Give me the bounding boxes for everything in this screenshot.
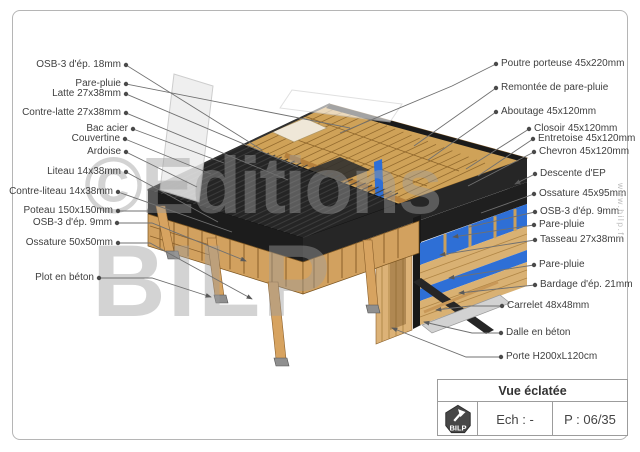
- callout-label-right-6: Descente d'EP: [540, 168, 606, 180]
- bilp-logo-cell: BILP: [438, 402, 478, 436]
- callout-label-right-14: Dalle en béton: [506, 327, 571, 339]
- callout-label-right-13: Carrelet 48x48mm: [507, 300, 589, 312]
- callout-label-right-15: Porte H200xL120cm: [506, 351, 597, 363]
- callout-label-right-9: Pare-pluie: [539, 219, 585, 231]
- callout-label-left-2: Latte 27x38mm: [52, 88, 121, 100]
- callout-label-right-10: Tasseau 27x38mm: [540, 234, 624, 246]
- title-block: Vue éclatée BILP Ech : - P : 06/35: [437, 379, 628, 436]
- title-block-title: Vue éclatée: [438, 380, 627, 402]
- callout-label-right-11: Pare-pluie: [539, 259, 585, 271]
- callout-label-left-9: Poteau 150x150mm: [23, 205, 113, 217]
- callout-label-right-7: Ossature 45x95mm: [539, 188, 626, 200]
- callout-label-right-1: Remontée de pare-pluie: [501, 82, 608, 94]
- scale-cell: Ech : -: [478, 402, 553, 436]
- callout-label-right-5: Chevron 45x120mm: [539, 146, 629, 158]
- callout-label-right-8: OSB-3 d'ép. 9mm: [540, 206, 619, 218]
- callout-label-left-3: Contre-latte 27x38mm: [22, 107, 121, 119]
- callout-label-left-0: OSB-3 d'ép. 18mm: [36, 59, 121, 71]
- callout-label-right-0: Poutre porteuse 45x220mm: [501, 58, 624, 70]
- callout-label-right-4: Entretoise 45x120mm: [538, 133, 635, 145]
- callout-label-right-2: Aboutage 45x120mm: [501, 106, 596, 118]
- callout-label-left-7: Liteau 14x38mm: [47, 166, 121, 178]
- plan-page: ©Editions BILP OSB-3 d'ép. 18mmPare-plui…: [0, 0, 640, 452]
- callout-label-right-12: Bardage d'ép. 21mm: [540, 279, 633, 291]
- callout-label-left-10: OSB-3 d'ép. 9mm: [33, 217, 112, 229]
- bilp-logo-text: BILP: [449, 423, 466, 432]
- bilp-logo-icon: BILP: [442, 404, 474, 434]
- website-vertical-text: www.bilp.fr: [616, 183, 626, 241]
- callout-label-left-5: Couvertine: [72, 133, 120, 145]
- page-number-cell: P : 06/35: [553, 402, 627, 436]
- callout-label-left-12: Plot en béton: [35, 272, 94, 284]
- callout-label-left-8: Contre-liteau 14x38mm: [9, 186, 113, 198]
- callout-label-left-11: Ossature 50x50mm: [26, 237, 113, 249]
- callout-label-left-6: Ardoise: [87, 146, 121, 158]
